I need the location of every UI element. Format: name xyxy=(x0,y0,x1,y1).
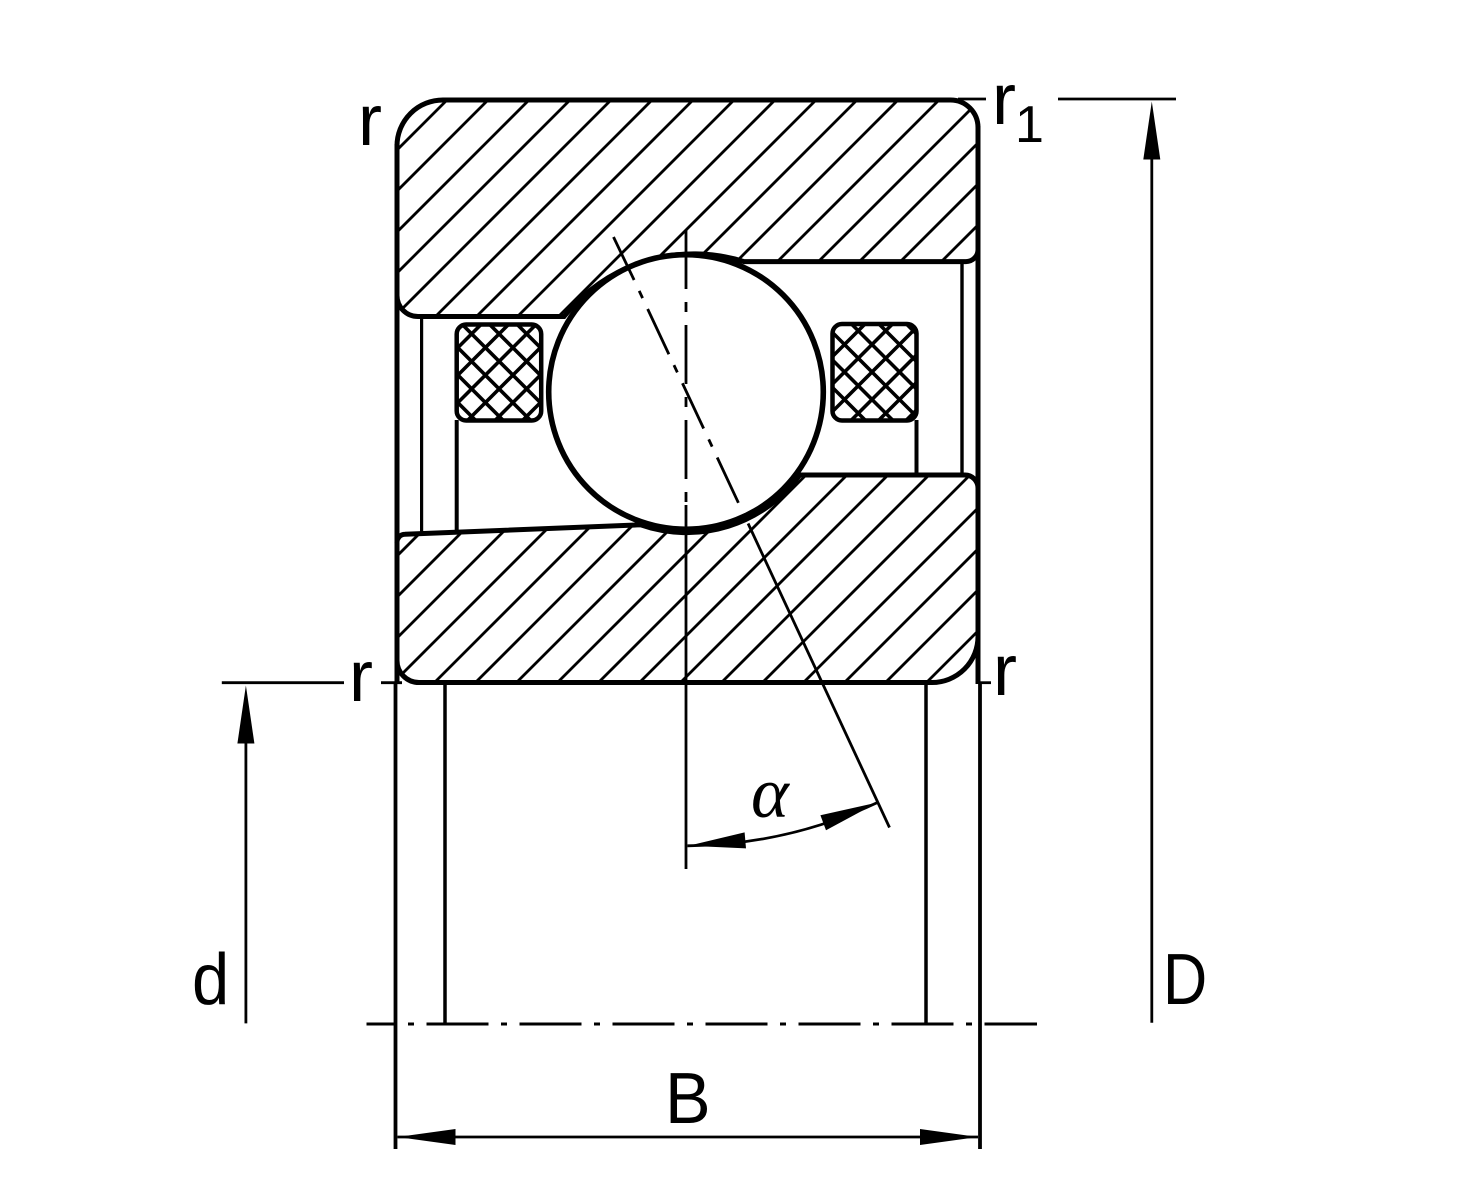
svg-text:D: D xyxy=(1163,940,1207,1020)
svg-text:r: r xyxy=(993,631,1017,711)
svg-text:α: α xyxy=(751,753,790,833)
svg-text:1: 1 xyxy=(1015,96,1044,154)
svg-text:r: r xyxy=(992,60,1016,140)
svg-text:r: r xyxy=(349,637,373,717)
svg-text:r: r xyxy=(358,81,382,161)
svg-text:d: d xyxy=(192,939,229,1020)
svg-text:B: B xyxy=(665,1057,711,1138)
